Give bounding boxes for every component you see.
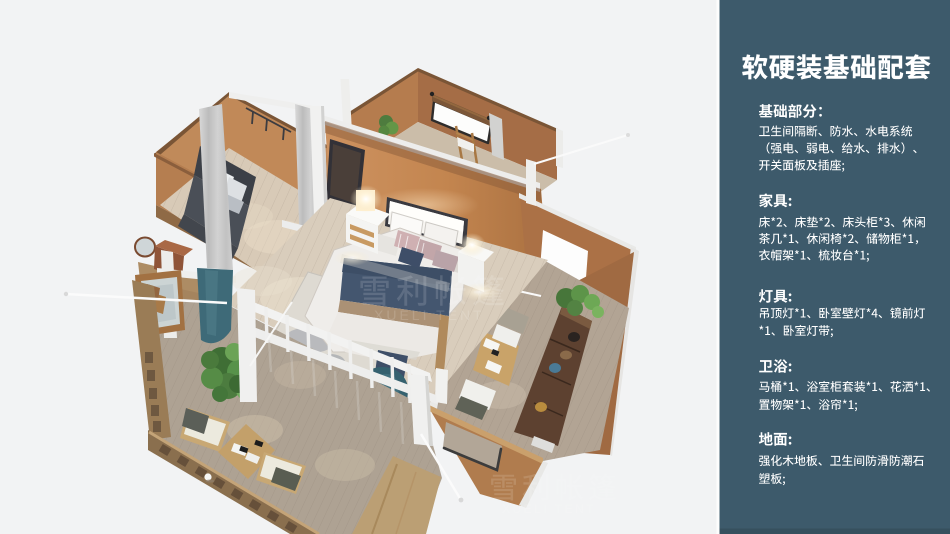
svg-text:XUELI TENT: XUELI TENT xyxy=(374,307,485,323)
svg-text:XUELI TENT: XUELI TENT xyxy=(502,502,596,516)
